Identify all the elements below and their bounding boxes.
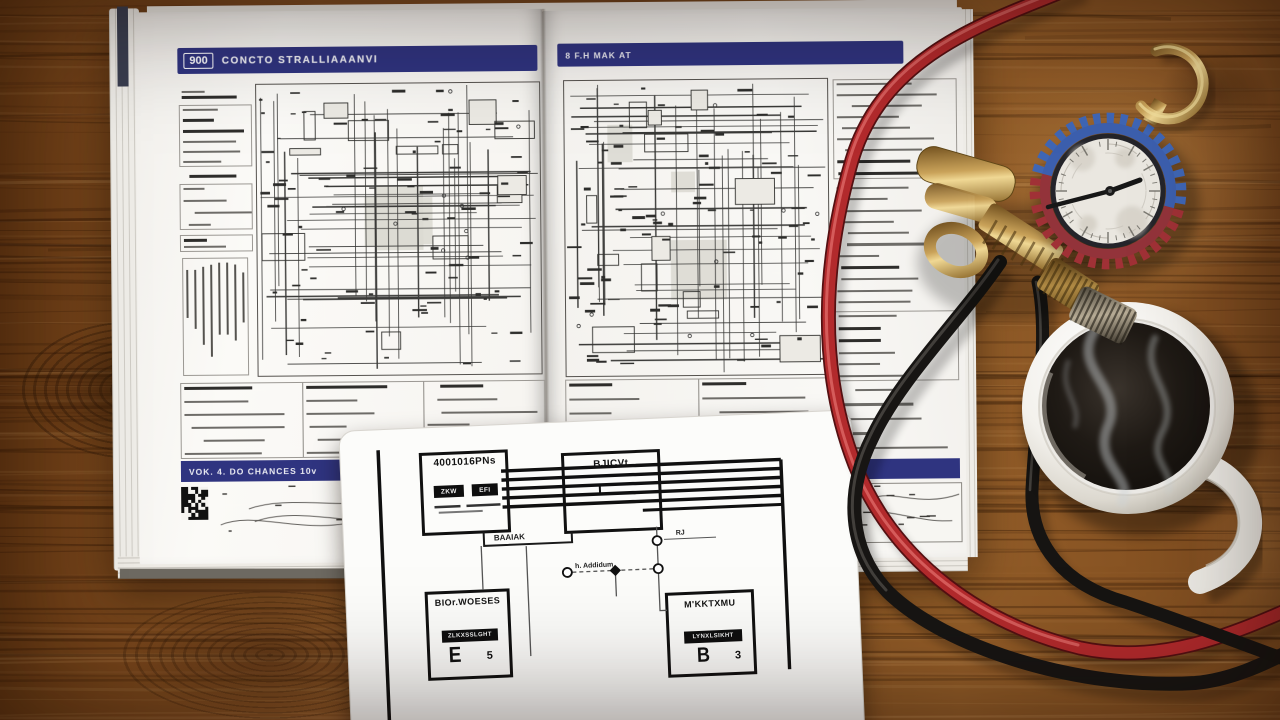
- gen-rect: [498, 176, 527, 195]
- gen-rect: [322, 358, 327, 359]
- text-line: [569, 412, 611, 414]
- gen-circle: [577, 324, 580, 327]
- gen-rect: [699, 184, 714, 186]
- gen-rect: [461, 207, 475, 210]
- gen-rect: [789, 225, 798, 227]
- gen-rect: [598, 254, 619, 265]
- text-line: [192, 426, 285, 429]
- diagram-card: 4001016PNs ZKW EFI BJICVt BAAIAK RJ h. A…: [338, 409, 866, 720]
- text-line: [855, 389, 905, 392]
- card-num: 5: [487, 650, 494, 662]
- gen-rect: [512, 100, 518, 102]
- gen-rect: [777, 301, 781, 303]
- gen-rect: [811, 238, 815, 240]
- gen-rect: [578, 277, 592, 279]
- gen-rect: [384, 357, 389, 359]
- text-line: [183, 140, 236, 143]
- gen-rect: [629, 102, 646, 128]
- text-line: [837, 116, 899, 119]
- gen-path: [875, 511, 953, 521]
- gen-rect: [735, 178, 774, 204]
- gen-rect: [291, 113, 296, 114]
- gen-rect: [441, 113, 455, 116]
- gen-rect: [694, 197, 706, 200]
- gen-rect: [601, 276, 605, 279]
- gen-line: [714, 108, 716, 360]
- gen-rect: [420, 191, 433, 194]
- gen-rect: [620, 229, 626, 232]
- node-circle: [654, 564, 663, 573]
- barcode-block: [181, 487, 208, 520]
- text-line: [210, 265, 213, 358]
- gen-rect: [222, 493, 227, 494]
- gen-rect: [797, 337, 801, 340]
- text-line: [839, 339, 881, 342]
- text-line: [839, 315, 897, 318]
- text-line: [226, 262, 229, 334]
- text-line: [184, 413, 284, 416]
- gen-rect: [675, 126, 681, 128]
- gen-rect: [513, 255, 522, 257]
- gen-circle: [449, 90, 452, 93]
- text-line: [842, 127, 909, 130]
- mini-dash: [466, 503, 500, 507]
- text-line: [184, 400, 248, 403]
- gen-rect: [778, 236, 787, 238]
- gen-rect: [288, 486, 295, 487]
- gen-line: [781, 112, 783, 322]
- text-line: [837, 198, 888, 201]
- gen-rect: [788, 155, 798, 156]
- gen-rect: [587, 355, 598, 357]
- gen-rect: [336, 211, 344, 213]
- gen-rect: [567, 246, 581, 248]
- gen-rect: [671, 240, 728, 300]
- text-line: [442, 410, 538, 413]
- text-line: [189, 224, 211, 226]
- gen-rect: [855, 524, 867, 526]
- gen-rect: [421, 312, 428, 314]
- text-line: [839, 363, 880, 365]
- gen-line: [529, 110, 531, 333]
- gen-line: [277, 94, 279, 287]
- gen-rect: [620, 363, 634, 365]
- gen-rect: [584, 188, 591, 191]
- gen-rect: [319, 177, 331, 180]
- gen-rect: [658, 104, 665, 106]
- card-chip: EFI: [472, 483, 498, 496]
- text-line: [184, 386, 252, 390]
- gen-line: [633, 159, 768, 160]
- gen-rect: [709, 167, 720, 169]
- gen-rect: [569, 296, 580, 299]
- gen-rect: [511, 156, 522, 158]
- gen-rect: [771, 172, 782, 174]
- gen-rect: [650, 309, 660, 312]
- gen-rect: [412, 213, 417, 214]
- gen-rect: [641, 87, 645, 89]
- gen-circle: [465, 229, 468, 232]
- gen-rect: [346, 174, 355, 177]
- gen-rect: [614, 104, 619, 105]
- gen-line: [616, 208, 807, 210]
- text-line: [189, 175, 236, 178]
- gen-rect: [501, 182, 508, 184]
- gen-rect: [645, 134, 688, 152]
- gen-rect: [469, 256, 479, 259]
- gen-rect: [788, 116, 794, 118]
- gen-rect: [587, 359, 599, 362]
- text-line: [569, 398, 639, 401]
- gen-rect: [366, 331, 375, 333]
- text-line: [306, 385, 387, 389]
- gen-rect: [581, 223, 585, 225]
- gen-line: [260, 98, 262, 360]
- text-line: [183, 188, 204, 190]
- gen-path: [873, 494, 959, 500]
- gen-rect: [586, 98, 595, 99]
- gen-rect: [229, 530, 232, 531]
- gen-rect: [705, 162, 708, 165]
- text-line: [234, 264, 237, 340]
- gen-rect: [798, 272, 804, 274]
- left-legend-box-2: [179, 183, 252, 230]
- text-line: [182, 91, 205, 93]
- gen-rect: [302, 111, 307, 113]
- gen-rect: [286, 340, 294, 341]
- gen-rect: [290, 92, 300, 94]
- gen-rect: [715, 133, 724, 136]
- right-footer-sketch: [853, 483, 959, 540]
- card-chip: LYNXLSIKHT: [684, 629, 742, 643]
- right-parts-list-box-1: [833, 78, 958, 179]
- node-label: RJ: [676, 529, 706, 537]
- left-page-header-code: 900: [183, 53, 213, 69]
- gen-rect: [275, 505, 281, 506]
- gen-line: [288, 362, 482, 364]
- gen-rect: [586, 140, 599, 142]
- gen-rect: [324, 186, 328, 188]
- gen-rect: [407, 186, 414, 187]
- gen-rect: [267, 205, 279, 208]
- gen-rect: [436, 90, 444, 93]
- gen-rect: [866, 485, 872, 486]
- card-margin-line: [378, 450, 390, 720]
- gen-rect: [324, 103, 348, 118]
- right-page-section-bar: [848, 458, 960, 479]
- gen-rect: [310, 277, 316, 279]
- left-legend-box-1: [179, 104, 253, 167]
- gen-rect: [614, 188, 624, 190]
- gen-rect: [648, 110, 661, 125]
- text-line: [183, 129, 244, 133]
- gen-circle: [816, 212, 819, 215]
- gen-rect: [808, 174, 821, 176]
- gen-rect: [457, 130, 463, 132]
- gen-rect: [517, 172, 528, 173]
- photo-stage: 900 CONCTO STRALLIAAANVI VOK. 4. DO CHAN…: [0, 0, 1280, 720]
- gen-line: [592, 225, 805, 227]
- text-line: [186, 269, 189, 318]
- gen-rect: [737, 89, 752, 92]
- gen-rect: [654, 323, 662, 325]
- gen-rect: [273, 183, 286, 186]
- text-line: [183, 109, 218, 111]
- gen-line: [274, 101, 276, 322]
- gen-rect: [494, 122, 503, 125]
- right-footer-sketch-box: [852, 482, 963, 543]
- gen-rect: [290, 148, 321, 155]
- gen-line: [577, 161, 578, 308]
- gen-rect: [361, 302, 375, 304]
- qr-cell: [205, 516, 208, 519]
- gen-rect: [495, 127, 509, 129]
- right-parts-list: [833, 183, 958, 306]
- gen-rect: [752, 235, 760, 237]
- gen-rect: [714, 285, 720, 288]
- gen-line: [270, 288, 531, 290]
- gen-rect: [614, 145, 624, 148]
- gen-line: [455, 158, 456, 291]
- gen-rect: [601, 278, 611, 281]
- gen-rect: [273, 292, 277, 294]
- gen-rect: [693, 202, 701, 205]
- text-line: [183, 161, 221, 163]
- text-line: [203, 439, 264, 442]
- gen-rect: [261, 151, 274, 153]
- gen-line: [308, 176, 522, 178]
- gen-rect: [803, 222, 810, 224]
- text-line: [309, 425, 346, 427]
- node-circle: [652, 536, 661, 545]
- gen-circle: [688, 334, 691, 337]
- bus-line-short: [643, 504, 783, 510]
- gen-line: [579, 343, 808, 345]
- text-line: [839, 351, 895, 354]
- gen-circle: [661, 212, 664, 215]
- left-page-section-title: VOK. 4. DO CHANCES 10v: [189, 465, 317, 476]
- gen-line: [303, 298, 507, 300]
- gen-rect: [755, 339, 768, 340]
- gen-rect: [662, 239, 670, 241]
- text-line: [839, 301, 911, 304]
- gen-rect: [299, 226, 302, 228]
- text-line: [837, 93, 937, 96]
- gen-rect: [759, 241, 762, 243]
- gen-rect: [431, 247, 439, 250]
- gen-rect: [447, 217, 455, 219]
- gen-rect: [405, 211, 416, 213]
- gen-line: [594, 120, 823, 122]
- right-page-header-bar: 8 F.H MAK AT: [557, 41, 903, 67]
- text-line: [839, 327, 881, 330]
- gen-rect: [653, 219, 658, 220]
- left-legend-vertical-notes: [182, 257, 249, 376]
- text-line: [837, 289, 912, 292]
- gen-rect: [907, 517, 915, 518]
- gen-rect: [304, 111, 315, 140]
- gen-line: [570, 94, 808, 96]
- text-line: [848, 232, 909, 235]
- text-line: [306, 399, 357, 402]
- text-line: [837, 255, 879, 257]
- text-line: [195, 211, 253, 214]
- gen-rect: [807, 306, 818, 309]
- gen-rect: [425, 272, 436, 274]
- gen-rect: [442, 145, 457, 154]
- gen-line: [620, 188, 813, 190]
- bus-right-drop: [781, 459, 790, 669]
- gen-rect: [375, 119, 386, 121]
- gen-line: [640, 322, 806, 323]
- gen-circle: [590, 313, 593, 316]
- gen-rect: [292, 285, 300, 287]
- gen-rect: [608, 299, 620, 300]
- mini-dash: [434, 505, 460, 509]
- gen-rect: [362, 119, 368, 121]
- card-glyph: B: [696, 643, 710, 668]
- gen-rect: [412, 309, 427, 311]
- gen-rect: [587, 268, 602, 271]
- gen-rect: [261, 112, 265, 114]
- gen-rect: [571, 128, 584, 130]
- gen-line: [470, 142, 472, 366]
- gen-rect: [607, 125, 632, 163]
- right-wiring-schematic: [563, 77, 832, 377]
- gen-rect: [448, 109, 453, 111]
- gen-rect: [510, 332, 522, 334]
- gen-rect: [668, 304, 679, 307]
- gen-rect: [655, 319, 667, 321]
- gen-rect: [392, 90, 405, 93]
- gen-rect: [762, 162, 777, 164]
- gen-rect: [687, 311, 718, 319]
- text-line: [184, 200, 227, 202]
- text-line: [839, 375, 903, 378]
- gen-rect: [334, 123, 347, 125]
- gen-rect: [288, 188, 296, 190]
- left-legend-box-3: [180, 234, 253, 252]
- text-line: [438, 398, 498, 401]
- gen-rect: [628, 186, 637, 187]
- text-line: [838, 171, 938, 175]
- gen-rect: [646, 215, 656, 218]
- gen-rect: [444, 129, 456, 130]
- card-chip: ZKW: [434, 485, 464, 498]
- gen-rect: [476, 293, 481, 296]
- text-line: [837, 83, 912, 86]
- gen-rect: [619, 125, 623, 127]
- text-line: [184, 246, 227, 248]
- gen-line: [269, 252, 501, 254]
- text-line: [845, 149, 922, 152]
- gen-line: [623, 131, 817, 133]
- gen-rect: [887, 495, 895, 496]
- text-line: [183, 119, 214, 122]
- gen-line: [298, 158, 300, 357]
- text-line: [852, 105, 922, 108]
- gen-rect: [448, 277, 457, 279]
- gen-circle: [342, 207, 345, 210]
- gen-rect: [364, 167, 378, 168]
- gen-rect: [427, 302, 441, 304]
- text-line: [440, 384, 483, 387]
- text-line: [242, 273, 245, 322]
- left-page-header-bar: 900 CONCTO STRALLIAAANVI: [177, 45, 537, 74]
- gen-rect: [296, 342, 304, 345]
- gen-rect: [279, 180, 288, 182]
- gen-rect: [791, 207, 804, 209]
- gen-rect: [632, 216, 645, 219]
- text-line: [183, 150, 240, 153]
- gen-rect: [510, 360, 521, 362]
- gen-rect: [874, 486, 880, 487]
- gen-rect: [266, 161, 270, 163]
- gen-rect: [642, 233, 651, 235]
- gen-rect: [708, 209, 716, 211]
- gen-rect: [259, 99, 262, 101]
- gen-rect: [750, 210, 754, 211]
- gen-rect: [491, 333, 497, 334]
- gen-rect: [590, 303, 605, 305]
- gen-rect: [757, 114, 768, 116]
- right-parts-list-box-2: [835, 310, 960, 381]
- gen-rect: [301, 269, 307, 271]
- gen-rect: [469, 100, 496, 125]
- gen-rect: [520, 242, 533, 244]
- gen-rect: [641, 264, 657, 291]
- gen-rect: [316, 249, 331, 251]
- gen-rect: [435, 141, 441, 143]
- gen-line: [271, 326, 486, 328]
- gen-line: [309, 265, 531, 267]
- page-edge-bookmark: [117, 6, 129, 86]
- gen-rect: [450, 167, 461, 169]
- gen-rect: [618, 209, 622, 211]
- text-line: [202, 267, 205, 344]
- gen-rect: [898, 524, 903, 525]
- gen-circle: [517, 125, 520, 128]
- gen-rect: [274, 198, 288, 200]
- gen-line: [676, 106, 678, 356]
- gen-rect: [737, 359, 745, 361]
- gen-rect: [750, 306, 759, 308]
- gen-circle: [751, 333, 754, 336]
- text-line: [702, 382, 746, 385]
- gen-rect: [691, 90, 708, 110]
- gen-rect: [260, 192, 270, 195]
- gen-rect: [927, 515, 936, 516]
- text-line: [837, 187, 909, 190]
- text-line: [702, 396, 805, 399]
- gen-rect: [422, 218, 428, 220]
- table-cell: [181, 383, 302, 458]
- text-line: [841, 278, 919, 281]
- gen-rect: [449, 264, 463, 266]
- gen-rect: [428, 121, 439, 123]
- gen-rect: [495, 290, 500, 292]
- gen-line: [582, 229, 778, 231]
- gen-rect: [593, 327, 635, 353]
- gen-rect: [498, 196, 510, 198]
- text-line: [838, 403, 913, 406]
- gen-rect: [657, 138, 665, 140]
- gen-rect: [463, 362, 471, 364]
- gen-rect: [346, 290, 358, 292]
- mini-dash: [439, 510, 483, 514]
- card-glyph: E: [448, 643, 462, 669]
- gen-rect: [585, 310, 595, 313]
